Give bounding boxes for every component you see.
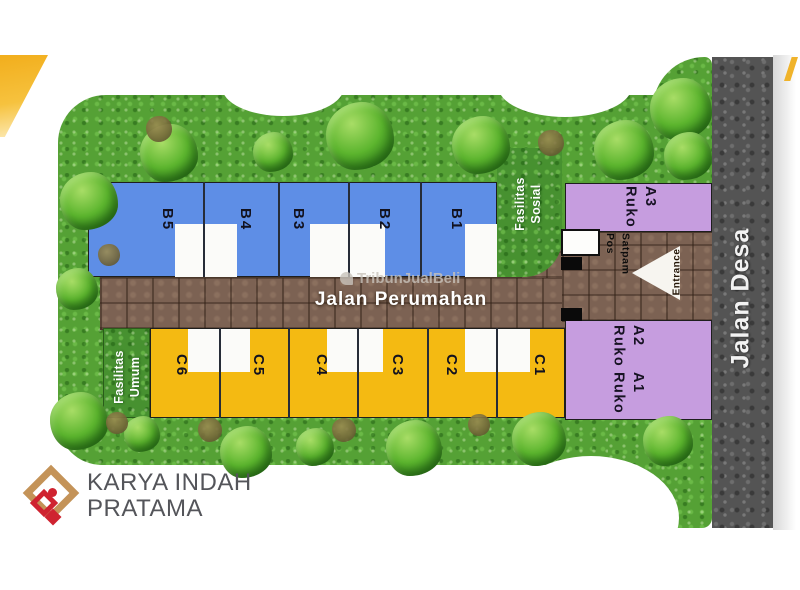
carport-c4-c3 [327, 329, 383, 372]
shrub [146, 116, 172, 142]
lot-label-b5: B5 [160, 208, 175, 231]
fasilitas-sosial-line2: Sosial [528, 177, 544, 231]
divider-b5-b4 [203, 182, 205, 277]
lot-label-c6: C6 [174, 354, 189, 377]
divider-c4-c3 [357, 328, 359, 418]
brand-logo [20, 463, 84, 535]
shrub [98, 244, 120, 266]
divider-b4-b3 [278, 182, 280, 277]
divider-c6-c5 [219, 328, 221, 418]
entrance-label: Entrance [672, 249, 683, 296]
divider-b3-b2 [348, 182, 350, 277]
lot-label-c1: C1 [532, 354, 547, 377]
tree [124, 416, 160, 452]
carport-b5-b4 [175, 224, 237, 277]
white-gap-top-left [222, 58, 344, 116]
ruko-a3-unit: A3 [640, 186, 660, 228]
ruko-a2-unit: A2 [628, 325, 648, 367]
tree [326, 102, 394, 170]
ruko-a1-name: Ruko [608, 372, 628, 414]
tree [253, 132, 293, 172]
divider-c3-c2 [427, 328, 429, 418]
white-gap-top-right [498, 55, 632, 117]
fasilitas-sosial-line1: Fasilitas [512, 177, 528, 231]
tree [60, 172, 118, 230]
lot-label-b2: B2 [377, 208, 392, 231]
carport-b1 [465, 224, 497, 277]
site-plan: B5 B4 B3 B2 B1 C6 C5 C4 C3 C2 C1 Ruko A3… [0, 0, 800, 590]
jalan-desa-label: Jalan Desa [727, 228, 756, 369]
fasilitas-umum-line2: Umum [127, 350, 143, 404]
lot-label-b3: B3 [291, 208, 306, 231]
tree [512, 412, 566, 466]
tree [296, 428, 334, 466]
fasilitas-umum-label: Fasilitas Umum [111, 350, 144, 404]
brand-logo-red-dot [48, 488, 57, 497]
fasilitas-umum-line1: Fasilitas [111, 350, 127, 404]
guard-post-line2: Satpam [617, 233, 632, 275]
ruko-a1-label: Ruko A1 [608, 372, 647, 414]
watermark-logo-icon [340, 272, 353, 285]
tree [664, 132, 712, 180]
tree [650, 78, 712, 140]
ruko-a2-label: Ruko A2 [608, 325, 647, 367]
gate-pillar-top [561, 257, 582, 270]
tree [50, 392, 108, 450]
lot-label-c5: C5 [251, 354, 266, 377]
shrub [538, 130, 564, 156]
fasilitas-sosial-label: Fasilitas Sosial [512, 177, 545, 231]
divider-b2-b1 [420, 182, 422, 277]
tree [452, 116, 510, 174]
shrub [332, 418, 356, 442]
ruko-a3-label: Ruko A3 [620, 186, 659, 228]
yellow-ribbon-left [0, 55, 48, 137]
tree [594, 120, 654, 180]
lot-label-c3: C3 [390, 354, 405, 377]
watermark-text: TribunJualBeli [357, 270, 460, 287]
gate-pillar-bottom [561, 308, 582, 321]
brand-name-line2: PRATAMA [87, 496, 252, 522]
brand-name-line1: KARYA INDAH [87, 470, 252, 496]
ruko-a1-unit: A1 [628, 372, 648, 414]
brand-name: KARYA INDAH PRATAMA [87, 470, 252, 522]
jalan-perumahan-label: Jalan Perumahan [300, 289, 502, 311]
watermark: TribunJualBeli [340, 270, 460, 287]
guard-post-label: Pos Satpam [602, 233, 632, 275]
white-gap-bottom [503, 456, 679, 580]
ruko-a3-name: Ruko [620, 186, 640, 228]
tree [643, 416, 693, 466]
lot-label-c4: C4 [314, 354, 329, 377]
lot-label-b1: B1 [449, 208, 464, 231]
ruko-a2-name: Ruko [608, 325, 628, 367]
tree [386, 420, 442, 476]
tree [56, 268, 98, 310]
divider-c5-c4 [288, 328, 290, 418]
divider-c2-c1 [496, 328, 498, 418]
shrub [198, 418, 222, 442]
shrub [106, 412, 128, 434]
guard-post-building [561, 229, 600, 256]
right-gray-band [773, 55, 800, 530]
lot-label-c2: C2 [444, 354, 459, 377]
lot-label-b4: B4 [238, 208, 253, 231]
guard-post-line1: Pos [602, 233, 617, 275]
shrub [468, 414, 490, 436]
